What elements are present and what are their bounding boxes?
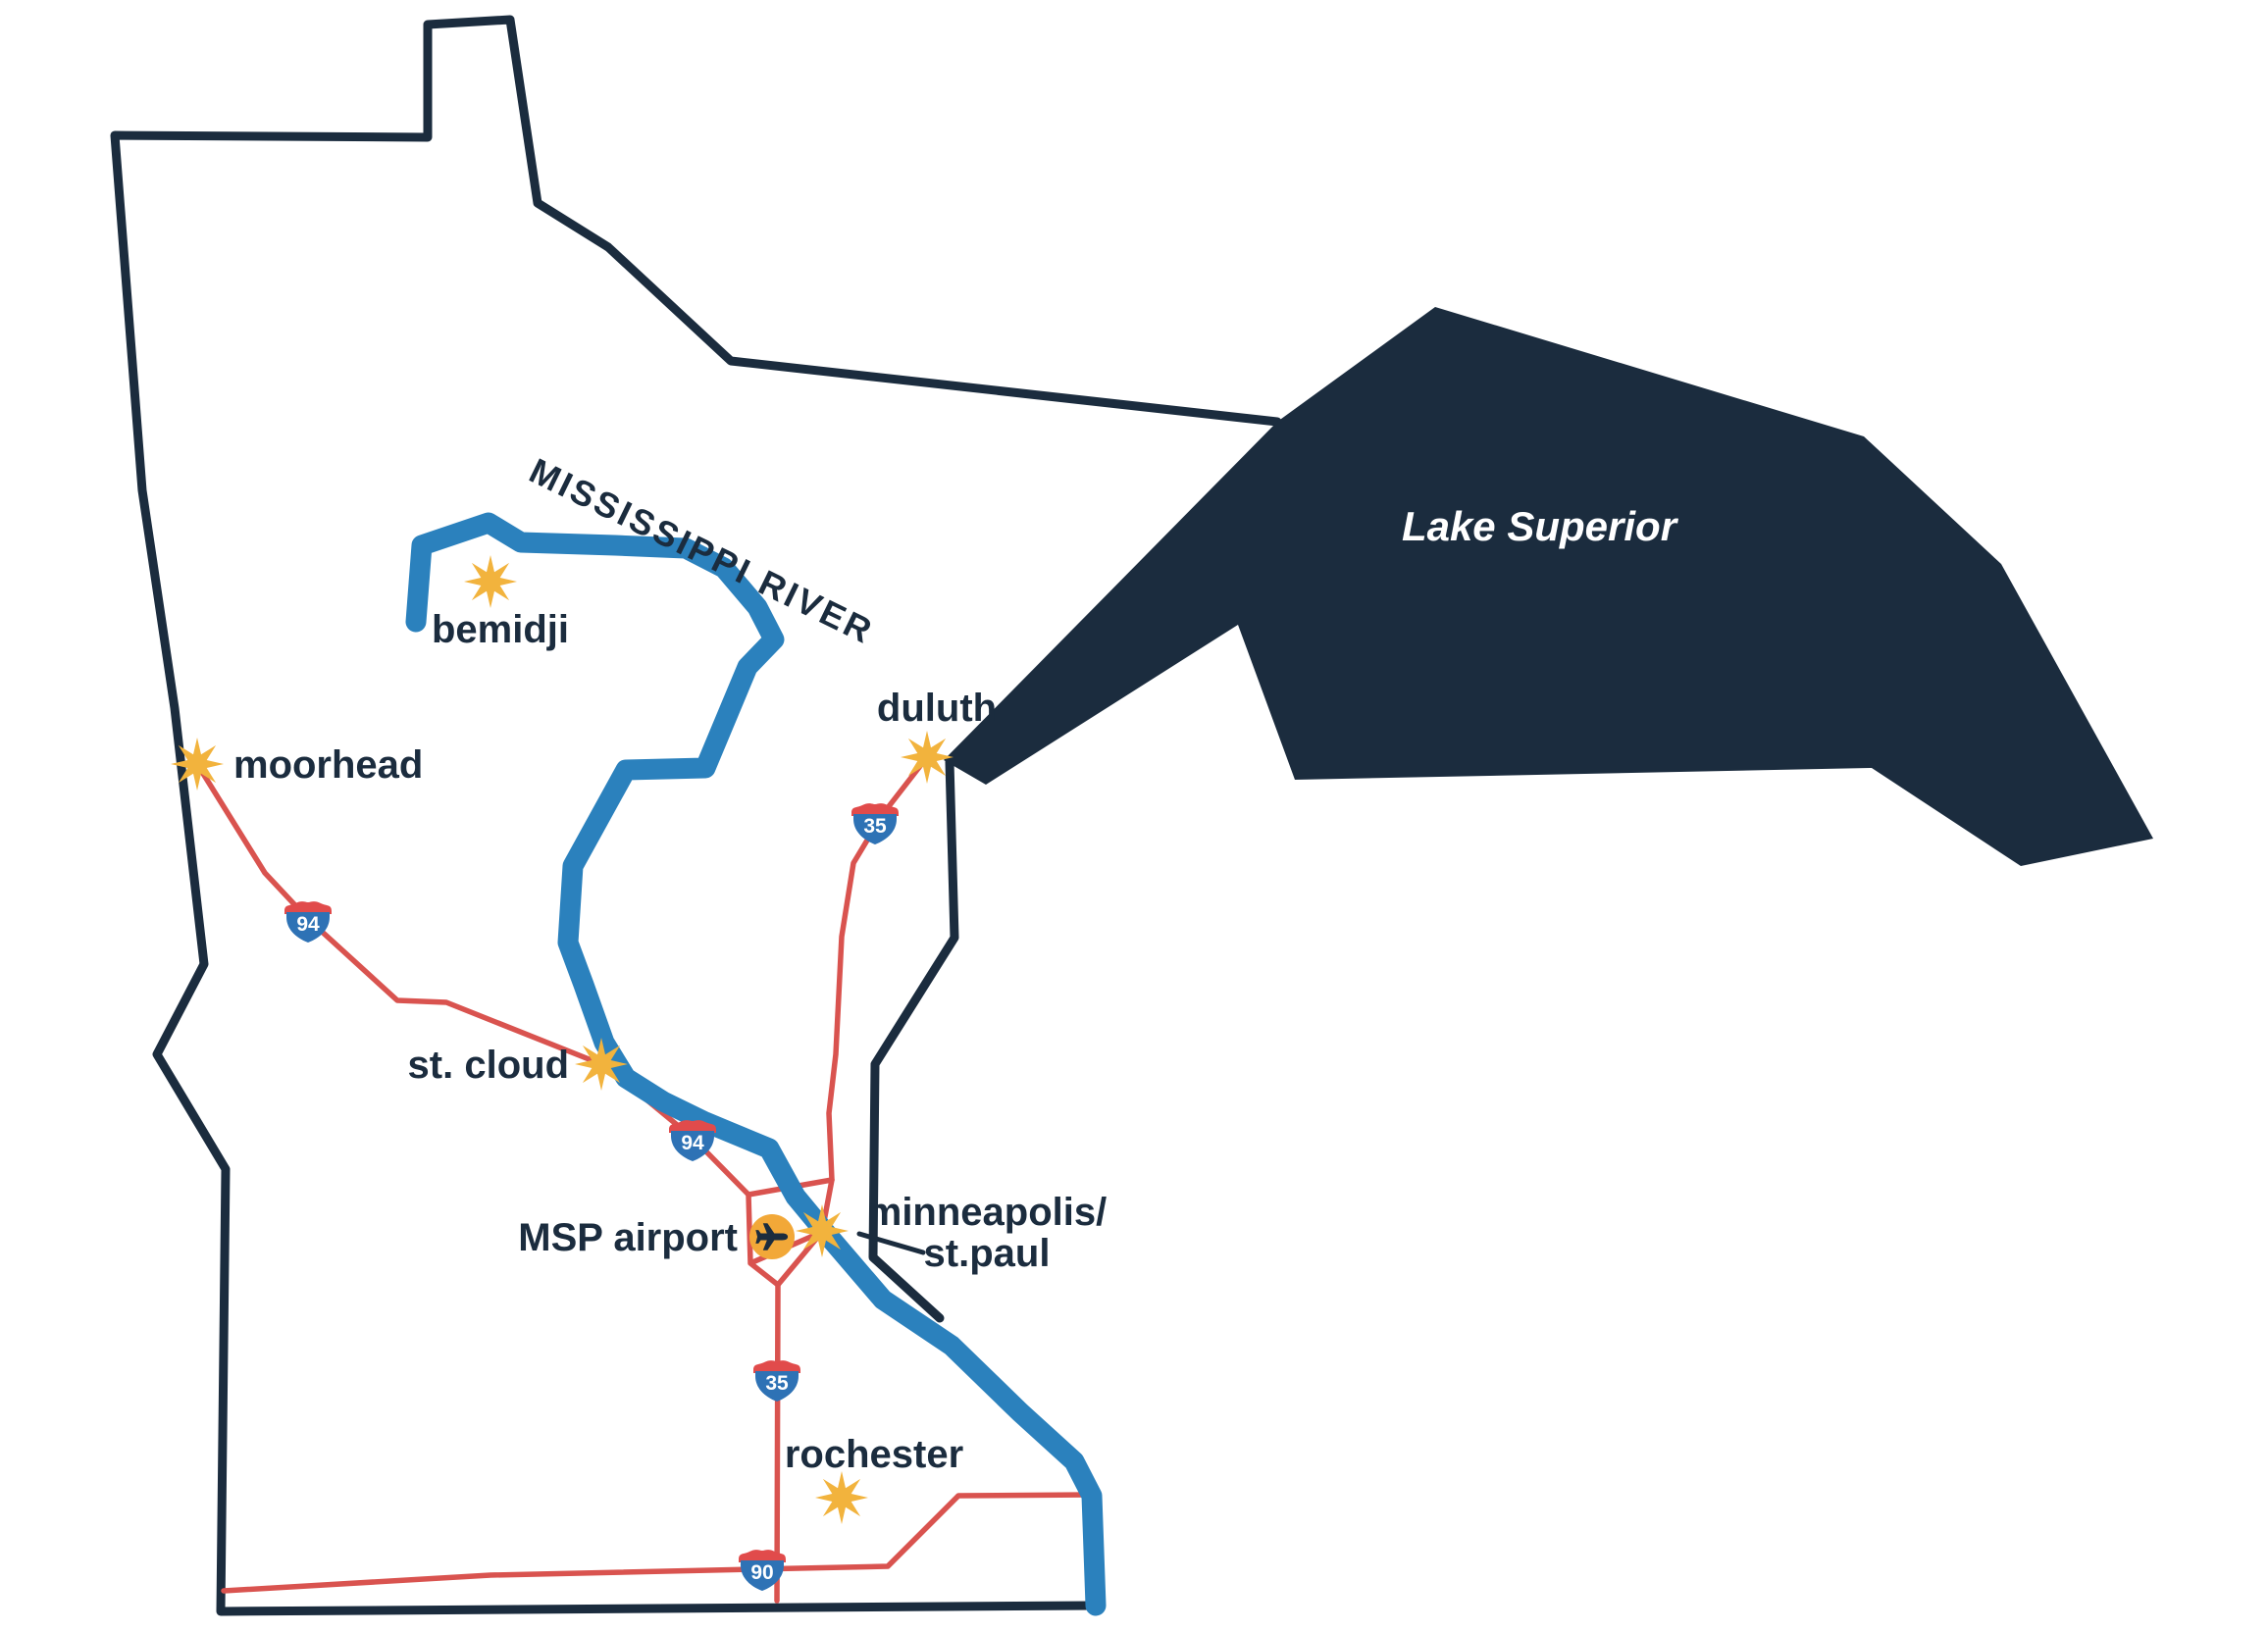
shield-number: 94	[681, 1132, 704, 1154]
city-label-minneapolis: minneapolis/	[867, 1191, 1108, 1234]
shield-number: 90	[750, 1561, 773, 1584]
road-i94-west	[197, 764, 748, 1195]
city-label-st-cloud: st. cloud	[408, 1044, 569, 1087]
city-marker-moorhead	[171, 738, 224, 791]
city-marker-rochester	[815, 1471, 868, 1524]
minnesota-map: 94 94 35 35 90 bemidji moorhead duluth s…	[0, 0, 2268, 1633]
road-i90	[224, 1495, 1092, 1591]
interstate-shield-35-north: 35	[851, 803, 899, 844]
city-label-st-paul: st.paul	[924, 1232, 1051, 1275]
city-marker-duluth	[901, 731, 954, 784]
interstate-shield-35-south: 35	[753, 1360, 800, 1402]
city-label-duluth: duluth	[877, 687, 997, 730]
shield-number: 94	[296, 913, 320, 936]
lake-superior-label: Lake Superior	[1402, 503, 1679, 549]
city-label-moorhead: moorhead	[233, 743, 423, 787]
city-marker-st-cloud	[575, 1038, 628, 1091]
state-outline-minnesota	[115, 20, 1277, 1611]
city-marker-minneapolis-st-paul	[796, 1204, 849, 1257]
shield-number: 35	[765, 1372, 789, 1395]
city-marker-bemidji	[464, 555, 517, 608]
airport-icon	[749, 1214, 795, 1259]
city-label-msp-airport: MSP airport	[518, 1216, 738, 1259]
lake-superior-shape	[944, 307, 2153, 866]
city-label-bemidji: bemidji	[432, 608, 569, 651]
city-label-rochester: rochester	[785, 1433, 963, 1476]
shield-number: 35	[863, 815, 887, 838]
